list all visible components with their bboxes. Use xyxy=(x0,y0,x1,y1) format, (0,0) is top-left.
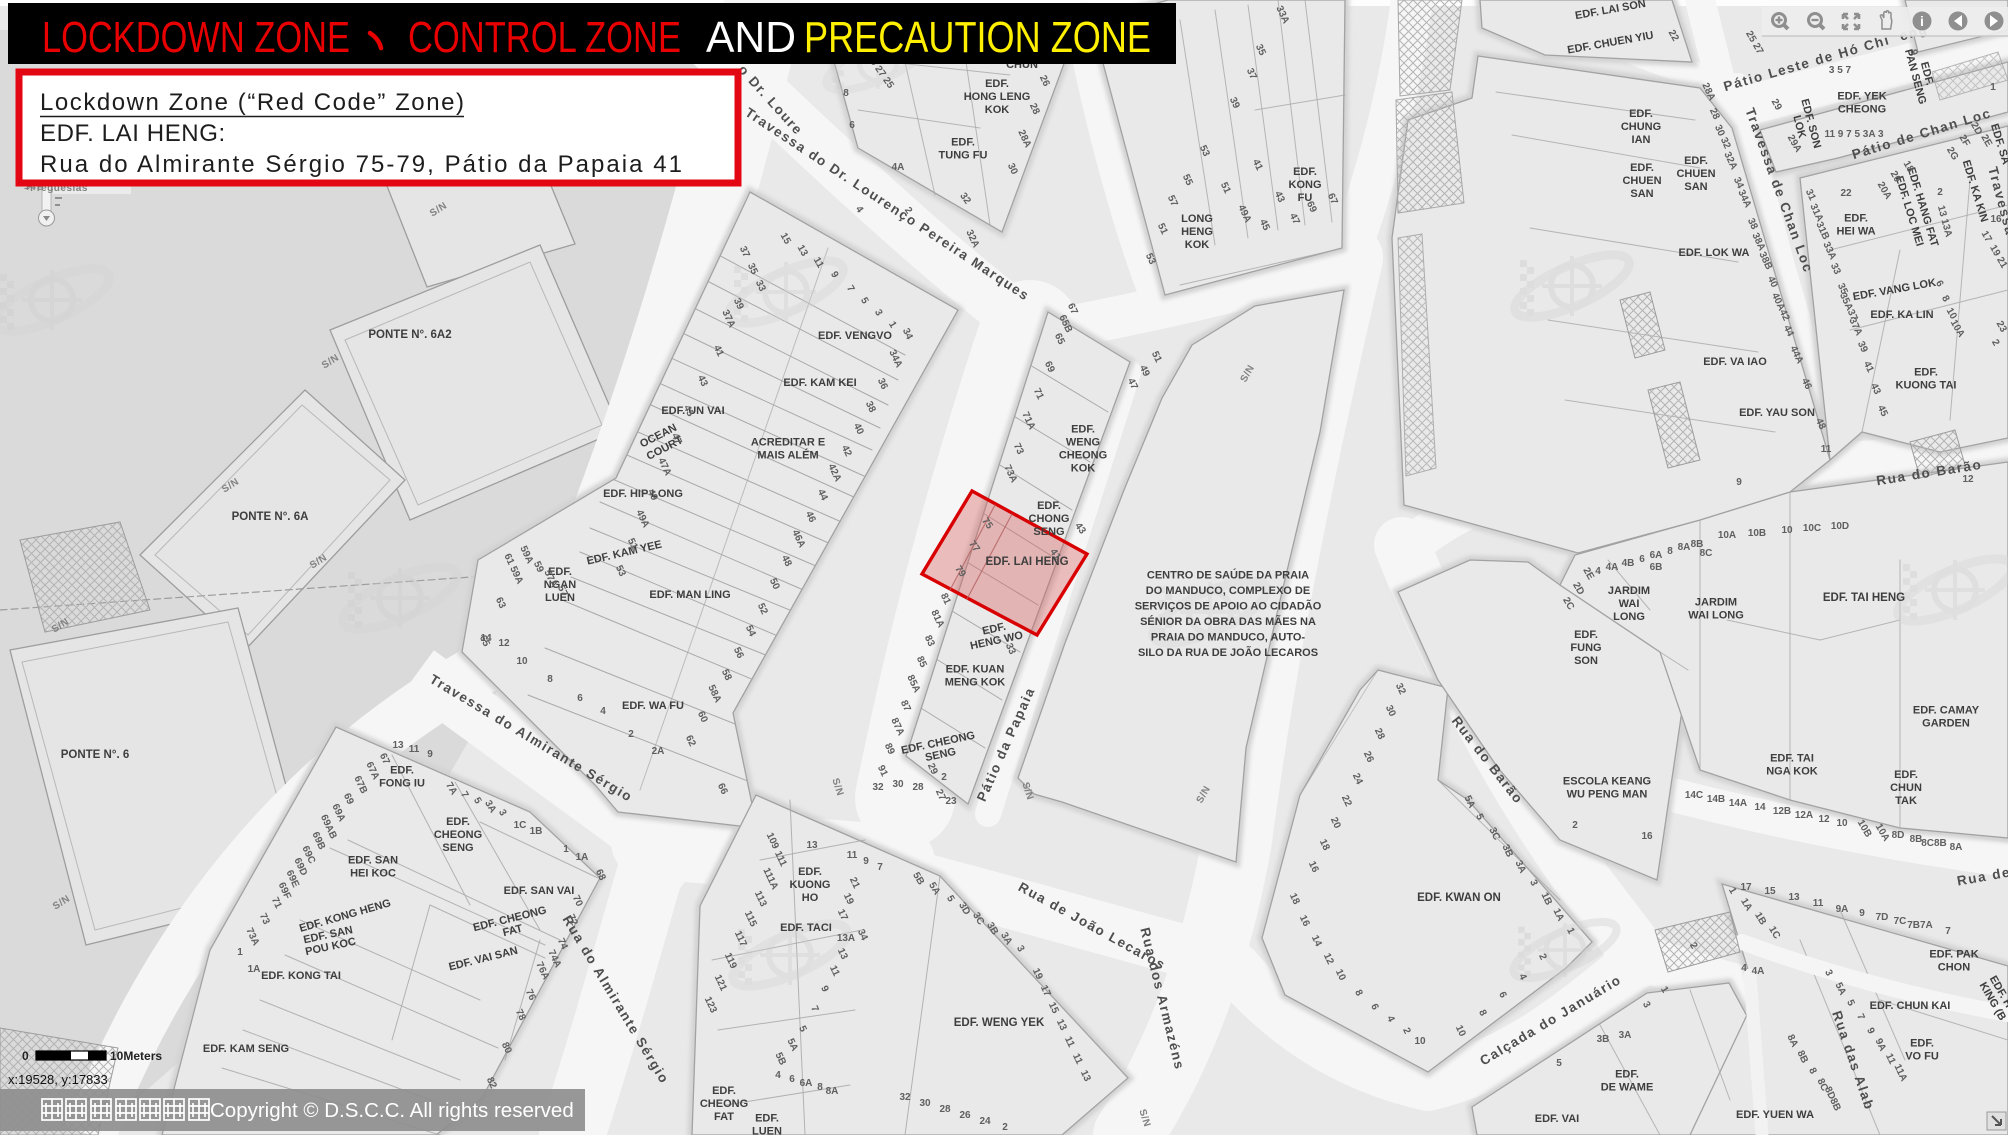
svg-text:6: 6 xyxy=(849,120,855,131)
svg-text:8C8B: 8C8B xyxy=(1921,838,1947,849)
svg-text:8: 8 xyxy=(817,1082,823,1093)
svg-text:Copyright © D.S.C.C. All right: Copyright © D.S.C.C. All rights reserved xyxy=(210,1099,574,1122)
svg-text:15: 15 xyxy=(1764,886,1776,897)
svg-text:SAN: SAN xyxy=(1630,188,1653,200)
svg-text:26: 26 xyxy=(959,1110,971,1121)
svg-text:30: 30 xyxy=(919,1098,931,1109)
svg-text:HEI WA: HEI WA xyxy=(1836,226,1875,238)
svg-text:CHUEN: CHUEN xyxy=(1676,168,1715,180)
svg-text:4A: 4A xyxy=(1752,966,1765,977)
svg-text:7C: 7C xyxy=(1894,916,1907,927)
svg-text:EDF. CAMAY: EDF. CAMAY xyxy=(1913,705,1980,717)
svg-text:EDF. VA IAO: EDF. VA IAO xyxy=(1703,356,1767,368)
svg-text:32: 32 xyxy=(899,1092,911,1103)
svg-text:CHEONG: CHEONG xyxy=(1838,104,1886,116)
svg-text:EDF.: EDF. xyxy=(1037,500,1061,512)
svg-text:LONG: LONG xyxy=(1181,213,1213,225)
svg-text:4: 4 xyxy=(600,706,606,717)
svg-text:28: 28 xyxy=(939,1104,951,1115)
svg-text:WENG: WENG xyxy=(1066,437,1100,449)
svg-text:EDF.: EDF. xyxy=(1630,162,1654,174)
svg-text:8A: 8A xyxy=(826,1086,839,1097)
svg-text:12: 12 xyxy=(1962,474,1974,485)
svg-text:MENG KOK: MENG KOK xyxy=(945,677,1006,689)
svg-text:12: 12 xyxy=(498,638,510,649)
svg-text:4: 4 xyxy=(775,1070,781,1081)
svg-text:FAT: FAT xyxy=(714,1111,734,1123)
svg-text:EDF. CHUN KAI: EDF. CHUN KAI xyxy=(1870,1000,1951,1012)
svg-text:SERVIÇOS DE APOIO AO CIDADÃO: SERVIÇOS DE APOIO AO CIDADÃO xyxy=(1135,599,1322,612)
svg-text:14C: 14C xyxy=(1685,790,1703,801)
svg-text:11: 11 xyxy=(847,850,858,861)
svg-text:FONG IU: FONG IU xyxy=(379,778,425,790)
svg-text:i: i xyxy=(1920,13,1924,29)
svg-text:GARDEN: GARDEN xyxy=(1922,718,1970,730)
svg-text:10: 10 xyxy=(1836,818,1848,829)
svg-text:SON: SON xyxy=(1574,655,1598,667)
svg-text:EDF. KONG TAI: EDF. KONG TAI xyxy=(261,970,341,982)
svg-text:4A: 4A xyxy=(892,162,905,173)
svg-text:10: 10 xyxy=(516,656,528,667)
svg-text:8: 8 xyxy=(1667,546,1673,557)
svg-text:LOCKDOWN ZONE: LOCKDOWN ZONE xyxy=(42,13,350,62)
svg-text:Lockdown Zone (“Red Code” Zone: Lockdown Zone (“Red Code” Zone) xyxy=(40,89,464,116)
svg-text:7: 7 xyxy=(1945,926,1951,937)
svg-text:1A: 1A xyxy=(576,852,589,863)
svg-text:2A: 2A xyxy=(652,746,665,757)
svg-text:CHEONG: CHEONG xyxy=(700,1098,748,1110)
svg-text:6A: 6A xyxy=(800,1078,813,1089)
svg-text:PONTE N°. 6A2: PONTE N°. 6A2 xyxy=(368,329,451,341)
svg-text:EDF.: EDF. xyxy=(1910,1038,1934,1050)
svg-text:KUONG TAI: KUONG TAI xyxy=(1896,380,1957,392)
svg-text:KONG: KONG xyxy=(1289,179,1322,191)
svg-text:3B: 3B xyxy=(1597,1034,1610,1045)
svg-text:EDF.: EDF. xyxy=(1574,629,1598,641)
svg-text:16: 16 xyxy=(1641,831,1653,842)
svg-text:EDF. TACI: EDF. TACI xyxy=(780,922,832,934)
svg-text:12B: 12B xyxy=(1773,806,1791,817)
svg-text:EDF. KAM KEI: EDF. KAM KEI xyxy=(783,377,856,389)
svg-text:17: 17 xyxy=(1740,882,1752,893)
svg-text:2: 2 xyxy=(1002,1122,1008,1133)
svg-text:4A: 4A xyxy=(1606,562,1619,573)
svg-text:8: 8 xyxy=(843,88,849,99)
svg-text:EDF.: EDF. xyxy=(390,765,414,777)
svg-text:10D: 10D xyxy=(1831,521,1849,532)
svg-text:9: 9 xyxy=(1736,477,1742,488)
svg-text:13: 13 xyxy=(392,740,404,751)
svg-text:Rua do Almirante Sérgio 75-79,: Rua do Almirante Sérgio 75-79, Pátio da … xyxy=(40,151,682,178)
svg-text:EDF.: EDF. xyxy=(1629,108,1653,120)
svg-text:4B: 4B xyxy=(1622,558,1635,569)
svg-text:KUONG: KUONG xyxy=(790,879,831,891)
svg-text:SAN: SAN xyxy=(1684,181,1707,193)
svg-text:8C: 8C xyxy=(1700,548,1713,559)
svg-text:8D: 8D xyxy=(1892,830,1905,841)
svg-text:KOK: KOK xyxy=(985,104,1010,116)
svg-text:12: 12 xyxy=(1818,814,1830,825)
svg-text:1: 1 xyxy=(237,947,243,958)
svg-text:5: 5 xyxy=(1556,1058,1562,1069)
svg-text:WAI LONG: WAI LONG xyxy=(1688,610,1744,622)
svg-text:SÉNIOR DA OBRA DAS MÃES NA: SÉNIOR DA OBRA DAS MÃES NA xyxy=(1140,615,1316,628)
svg-text:EDF. SAN: EDF. SAN xyxy=(348,855,398,867)
svg-text:24: 24 xyxy=(979,1116,991,1127)
svg-text:10: 10 xyxy=(1414,1036,1426,1047)
svg-text:CHEONG: CHEONG xyxy=(434,829,482,841)
svg-text:9A: 9A xyxy=(1836,904,1849,915)
svg-text:HENG: HENG xyxy=(1181,226,1213,238)
svg-text:PONTE N°. 6A: PONTE N°. 6A xyxy=(232,511,309,523)
svg-text:EDF. VENGVO: EDF. VENGVO xyxy=(818,330,892,342)
svg-text:0: 0 xyxy=(22,1049,29,1063)
svg-text:8A: 8A xyxy=(1678,542,1691,553)
svg-text:EDF. WA FU: EDF. WA FU xyxy=(622,700,684,712)
svg-text:13: 13 xyxy=(806,840,818,851)
svg-text:EDF.: EDF. xyxy=(1844,213,1868,225)
svg-text:2: 2 xyxy=(1572,820,1578,831)
svg-text:EDF.: EDF. xyxy=(1914,367,1938,379)
svg-text:EDF.: EDF. xyxy=(1894,769,1918,781)
svg-text:SENG: SENG xyxy=(442,842,473,854)
svg-text:6B: 6B xyxy=(1650,562,1663,573)
svg-text:IAN: IAN xyxy=(1632,134,1651,146)
svg-text:CENTRO DE SAÚDE DA PRAIA: CENTRO DE SAÚDE DA PRAIA xyxy=(1147,568,1309,581)
svg-text:ESCOLA KEANG: ESCOLA KEANG xyxy=(1563,776,1651,788)
svg-text:PRAIA DO MANDUCO, AUTO-: PRAIA DO MANDUCO, AUTO- xyxy=(1151,631,1306,643)
svg-text:9: 9 xyxy=(427,749,433,760)
svg-text:EDF. WENG YEK: EDF. WENG YEK xyxy=(954,1017,1045,1029)
svg-text:7: 7 xyxy=(877,862,883,873)
svg-text:JARDIM: JARDIM xyxy=(1695,597,1737,609)
svg-text:EDF. TAI: EDF. TAI xyxy=(1770,753,1814,765)
svg-text:10C: 10C xyxy=(1803,523,1821,534)
svg-text:EDF.: EDF. xyxy=(712,1085,736,1097)
svg-text:EDF. PAK: EDF. PAK xyxy=(1929,949,1978,961)
svg-text:9: 9 xyxy=(1859,908,1865,919)
svg-text:12A: 12A xyxy=(1795,810,1813,821)
svg-text:7D: 7D xyxy=(1876,912,1889,923)
svg-text:7B7A: 7B7A xyxy=(1907,920,1933,931)
svg-text:CHEONG: CHEONG xyxy=(1059,450,1107,462)
svg-text:HONG LENG: HONG LENG xyxy=(964,91,1031,103)
svg-text:WAI: WAI xyxy=(1619,598,1640,610)
svg-text:10Meters: 10Meters xyxy=(110,1049,162,1063)
svg-text:14: 14 xyxy=(480,633,492,644)
svg-text:EDF. KAM SENG: EDF. KAM SENG xyxy=(203,1043,289,1055)
svg-text:EDF. KWAN ON: EDF. KWAN ON xyxy=(1417,892,1501,904)
svg-text:1: 1 xyxy=(563,844,569,855)
svg-text:23: 23 xyxy=(945,796,957,807)
svg-text:FUNG: FUNG xyxy=(1570,642,1601,654)
svg-text:KOK: KOK xyxy=(1185,239,1210,251)
svg-text:EDF. YUEN WA: EDF. YUEN WA xyxy=(1736,1109,1814,1121)
svg-text:SENG: SENG xyxy=(1033,526,1064,538)
svg-text:28: 28 xyxy=(912,782,924,793)
svg-text:9: 9 xyxy=(863,856,869,867)
svg-text:11: 11 xyxy=(1821,444,1832,455)
svg-text:2: 2 xyxy=(941,772,947,783)
svg-text:CHON: CHON xyxy=(1938,962,1970,974)
svg-text:14: 14 xyxy=(1754,802,1766,813)
svg-text:14B: 14B xyxy=(1707,794,1725,805)
svg-text:JARDIM: JARDIM xyxy=(1608,585,1650,597)
svg-text:EDF. MAN LING: EDF. MAN LING xyxy=(649,589,730,601)
svg-text:EDF.: EDF. xyxy=(1293,166,1317,178)
svg-text:EDF. YAU SON: EDF. YAU SON xyxy=(1739,407,1815,419)
svg-text:14A: 14A xyxy=(1729,798,1747,809)
svg-text:CHUNG: CHUNG xyxy=(1621,121,1661,133)
svg-text:EDF. SAN VAI: EDF. SAN VAI xyxy=(504,885,575,897)
svg-text:SILO DA RUA DE JOÃO LECAROS: SILO DA RUA DE JOÃO LECAROS xyxy=(1138,646,1318,659)
svg-text:4: 4 xyxy=(1741,963,1747,974)
svg-text:1C: 1C xyxy=(514,820,527,831)
svg-text:PONTE N°. 6: PONTE N°. 6 xyxy=(61,749,130,761)
svg-text:CONTROL ZONE: CONTROL ZONE xyxy=(408,13,681,62)
svg-text:EDF. HIP LONG: EDF. HIP LONG xyxy=(603,488,683,500)
svg-text:EDF. KUAN: EDF. KUAN xyxy=(946,664,1005,676)
svg-text:22: 22 xyxy=(1840,188,1852,199)
svg-text:HEI KOC: HEI KOC xyxy=(350,868,396,880)
svg-text:EDF.: EDF. xyxy=(446,816,470,828)
svg-text:DE WAME: DE WAME xyxy=(1601,1082,1654,1094)
svg-text:2: 2 xyxy=(1937,187,1943,198)
svg-text:CHONG: CHONG xyxy=(1029,513,1070,525)
svg-text:WU PENG MAN: WU PENG MAN xyxy=(1567,789,1648,801)
svg-text:EDF.: EDF. xyxy=(951,137,975,149)
svg-text:11 9 7 5 3A 3: 11 9 7 5 3A 3 xyxy=(1824,129,1884,140)
svg-text:1B: 1B xyxy=(530,826,543,837)
svg-text:KOK: KOK xyxy=(1071,463,1096,475)
svg-text:EDF. KA LIN: EDF. KA LIN xyxy=(1870,309,1933,321)
svg-text:EDF.: EDF. xyxy=(1684,155,1708,167)
svg-text:x:19528, y:17833: x:19528, y:17833 xyxy=(8,1072,108,1087)
svg-text:CHUEN: CHUEN xyxy=(1622,175,1661,187)
svg-text:8: 8 xyxy=(547,674,553,685)
svg-text:EDF. VAI: EDF. VAI xyxy=(1535,1113,1579,1125)
svg-text:1: 1 xyxy=(1990,82,1996,93)
svg-text:11: 11 xyxy=(409,744,420,755)
svg-text:3A: 3A xyxy=(1619,1030,1632,1041)
svg-text:EDF.: EDF. xyxy=(798,866,822,878)
svg-text:EDF.: EDF. xyxy=(755,1113,779,1125)
svg-text:TAK: TAK xyxy=(1895,795,1917,807)
svg-text:VO FU: VO FU xyxy=(1905,1051,1939,1063)
svg-text:13: 13 xyxy=(1788,892,1800,903)
svg-text:DO MANDUCO, COMPLEXO DE: DO MANDUCO, COMPLEXO DE xyxy=(1146,585,1310,597)
svg-text:8A: 8A xyxy=(1950,842,1963,853)
svg-text:NGA KOK: NGA KOK xyxy=(1766,766,1818,778)
svg-text:EDF.: EDF. xyxy=(1615,1069,1639,1081)
svg-text:EDF.: EDF. xyxy=(1071,424,1095,436)
svg-text:LONG: LONG xyxy=(1613,611,1645,623)
svg-text:1A: 1A xyxy=(248,964,261,975)
svg-text:PRECAUTION ZONE: PRECAUTION ZONE xyxy=(804,13,1151,62)
svg-text:2: 2 xyxy=(628,729,634,740)
svg-text:TUNG FU: TUNG FU xyxy=(939,150,988,162)
svg-text:13A: 13A xyxy=(837,933,855,944)
svg-text:LUEN: LUEN xyxy=(752,1126,782,1135)
svg-text:10: 10 xyxy=(1781,525,1793,536)
svg-text:6: 6 xyxy=(1639,554,1645,565)
svg-text:EDF. TAI HENG: EDF. TAI HENG xyxy=(1823,592,1905,604)
svg-text:16: 16 xyxy=(1990,214,2002,225)
svg-text:CHUN: CHUN xyxy=(1890,782,1922,794)
svg-text:EDF. LAI HENG:: EDF. LAI HENG: xyxy=(40,120,226,147)
svg-text:11: 11 xyxy=(1813,898,1824,909)
svg-text:32: 32 xyxy=(872,782,884,793)
svg-text:AND: AND xyxy=(706,13,796,62)
svg-text:6: 6 xyxy=(789,1074,795,1085)
svg-text:HO: HO xyxy=(802,892,819,904)
svg-text:10A: 10A xyxy=(1718,530,1736,541)
svg-text:MAIS ALÉM: MAIS ALÉM xyxy=(757,449,818,462)
svg-text:6: 6 xyxy=(577,693,583,704)
svg-text:EDF. LOK WA: EDF. LOK WA xyxy=(1679,247,1750,259)
svg-text:30: 30 xyxy=(892,779,904,790)
svg-text:EDF. YEK: EDF. YEK xyxy=(1837,91,1886,103)
svg-text:ACREDITAR E: ACREDITAR E xyxy=(751,437,825,449)
svg-text:EDF.: EDF. xyxy=(985,78,1009,90)
svg-text:10B: 10B xyxy=(1748,528,1766,539)
svg-text:6A: 6A xyxy=(1650,550,1663,561)
svg-text:3 5 7: 3 5 7 xyxy=(1829,65,1852,76)
